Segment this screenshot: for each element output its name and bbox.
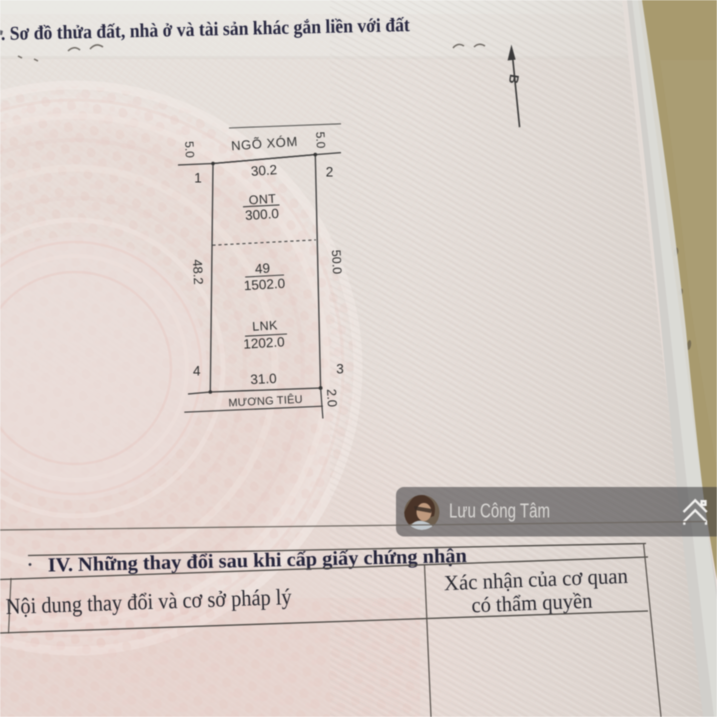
svg-text:2.0: 2.0 — [324, 389, 340, 408]
svg-text:3: 3 — [336, 362, 344, 377]
svg-text:5.0: 5.0 — [313, 131, 328, 149]
svg-text:48.2: 48.2 — [190, 259, 206, 285]
svg-text:4: 4 — [193, 363, 201, 378]
svg-text:50.0: 50.0 — [329, 249, 344, 274]
svg-text:Lưu Công Tâm: Lưu Công Tâm — [449, 501, 550, 523]
svg-text:2: 2 — [326, 165, 334, 180]
svg-text:49: 49 — [255, 261, 271, 277]
svg-text:5.0: 5.0 — [182, 141, 197, 159]
svg-text:30.2: 30.2 — [250, 162, 277, 179]
svg-text:300.0: 300.0 — [245, 206, 280, 223]
svg-text:LNK: LNK — [252, 318, 279, 334]
svg-text:1: 1 — [194, 171, 202, 186]
svg-text:31.0: 31.0 — [250, 371, 277, 387]
svg-text:1502.0: 1502.0 — [243, 276, 285, 293]
svg-text:1202.0: 1202.0 — [243, 334, 285, 351]
